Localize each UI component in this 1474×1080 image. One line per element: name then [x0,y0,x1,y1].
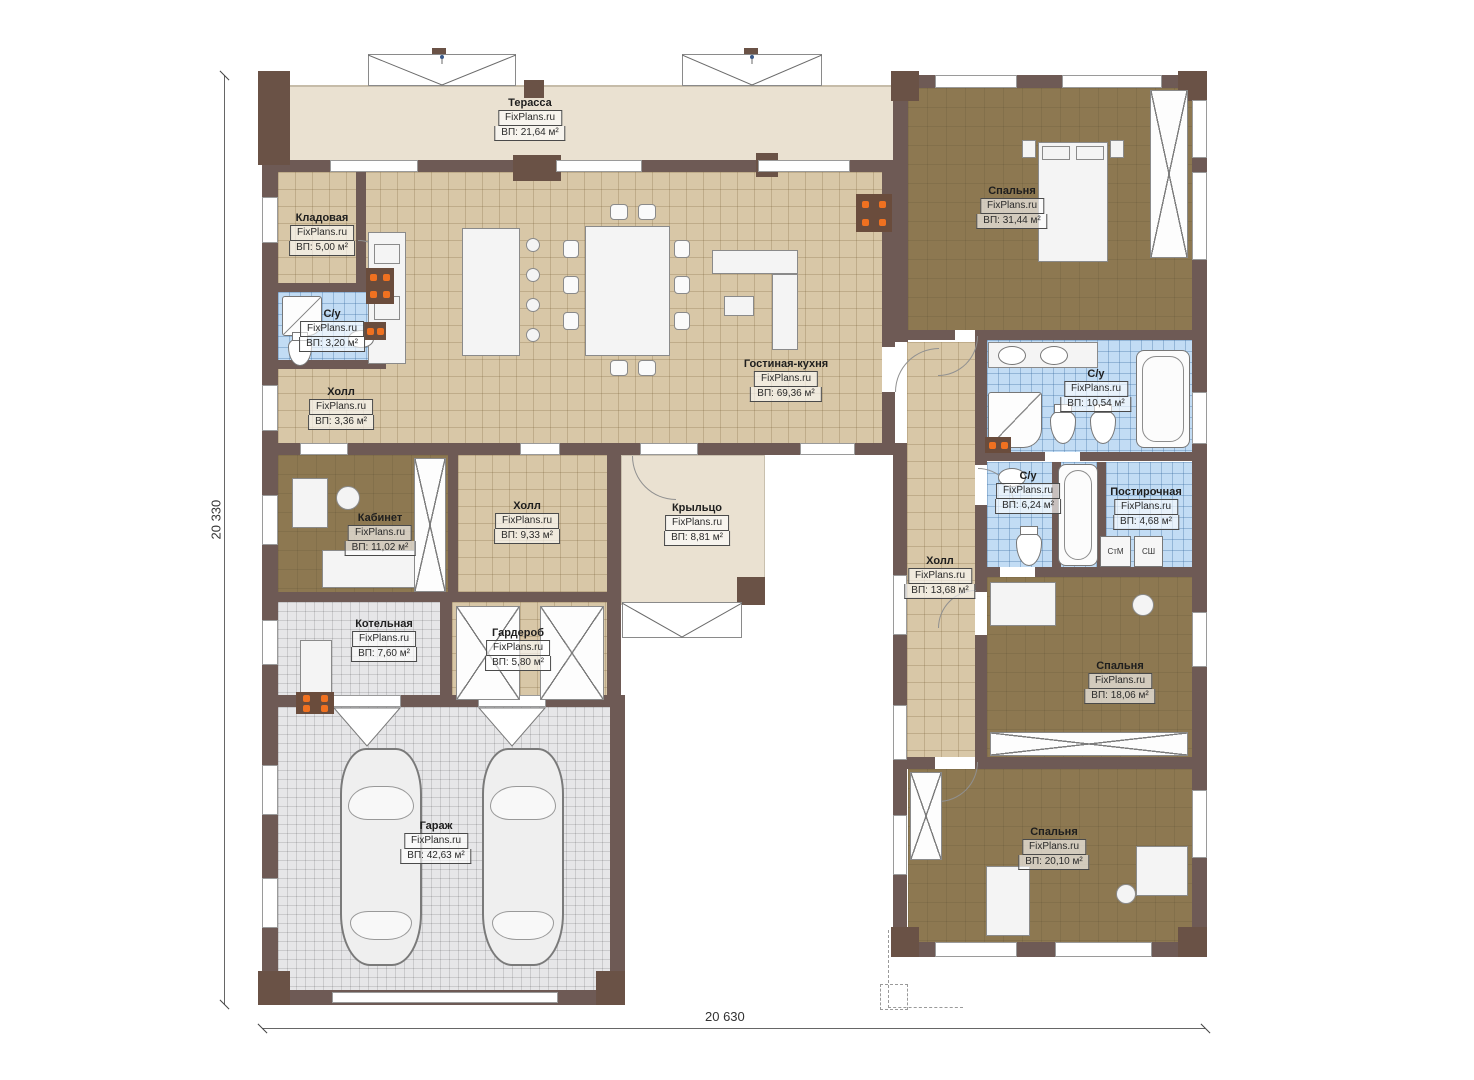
room-label-bath-small: С/у FixPlans.ru ВП: 3,20 м² [299,308,365,352]
wall [1035,567,1192,577]
room-name: Спальня [1096,660,1144,672]
room-label-bedroom-3: Спальня FixPlans.ru ВП: 20,10 м² [1018,826,1089,870]
room-area: ВП: 10,54 м² [1060,397,1131,412]
radiator [364,322,386,340]
room-label-hall-small: Холл FixPlans.ru ВП: 3,36 м² [308,386,374,430]
bar-stool [526,328,540,342]
window [300,443,348,455]
room-name: Холл [513,500,541,512]
room-watermark: FixPlans.ru [665,515,729,531]
room-area: ВП: 42,63 м² [400,849,471,864]
window [262,197,278,243]
window [1055,942,1152,957]
chair [674,240,690,258]
room-area: ВП: 20,10 м² [1018,855,1089,870]
room-label-terrace: Терасса FixPlans.ru ВП: 21,64 м² [494,97,565,141]
room-label-bedroom-2: Спальня FixPlans.ru ВП: 18,06 м² [1084,660,1155,704]
wall [975,567,1000,577]
wall-pier [513,155,561,181]
car [482,748,564,966]
radiator [985,437,1011,453]
room-watermark: FixPlans.ru [908,568,972,584]
wall [278,283,366,292]
wall [975,505,987,570]
chair [563,240,579,258]
room-name: Гостиная-кухня [744,358,828,370]
room-watermark: FixPlans.ru [754,371,818,387]
room-name: С/у [1087,368,1104,380]
room-label-living-kitchen: Гостиная-кухня FixPlans.ru ВП: 69,36 м² [744,358,828,402]
wardrobe-unit [990,732,1188,756]
wall-pier [596,971,625,1005]
dimension-line-bottom [262,1028,1205,1029]
room-watermark: FixPlans.ru [352,631,416,647]
chair [610,360,628,376]
room-area: ВП: 69,36 м² [750,387,821,402]
wall [975,757,1205,769]
room-watermark: FixPlans.ru [996,483,1060,499]
radiator [856,194,892,232]
room-area: ВП: 13,68 м² [904,584,975,599]
wall [356,172,366,292]
washing-machine: СтМ [1100,536,1131,567]
wall-pier [258,71,290,165]
window [262,620,278,665]
wall-pier [891,71,919,101]
bed [986,866,1030,936]
wall [985,330,1192,340]
nightstand [1110,140,1124,158]
wall-pier [258,971,290,1005]
window [262,765,278,815]
nightstand [1022,140,1036,158]
garage-entry-arrow [333,707,401,747]
wall [610,695,625,1005]
chair [674,276,690,294]
room-area: ВП: 31,44 м² [976,214,1047,229]
desk [292,478,328,528]
room-label-hall-mid: Холл FixPlans.ru ВП: 9,33 м² [494,500,560,544]
room-label-office: Кабинет FixPlans.ru ВП: 11,02 м² [345,512,416,556]
room-name: Спальня [1030,826,1078,838]
room-area: ВП: 21,64 м² [494,126,565,141]
awning-symbol [368,54,516,86]
radiator [366,268,394,304]
room-watermark: FixPlans.ru [404,833,468,849]
room-name: Холл [926,555,954,567]
boiler [300,640,332,698]
window [893,705,907,760]
dryer: СШ [1134,536,1163,567]
window [935,942,1017,957]
window [556,160,642,172]
room-watermark: FixPlans.ru [309,399,373,415]
bar-stool [526,268,540,282]
chair [638,360,656,376]
window [935,75,1017,88]
wardrobe-unit [910,772,942,860]
wall [448,455,458,592]
room-name: С/у [1019,470,1036,482]
bed [990,582,1056,626]
wall [975,577,987,592]
room-area: ВП: 18,06 м² [1084,689,1155,704]
room-watermark: FixPlans.ru [348,525,412,541]
wall [893,88,908,342]
door-opening [520,443,560,455]
wall-pier [891,927,919,957]
room-label-bath-master: С/у FixPlans.ru ВП: 10,54 м² [1060,368,1131,412]
room-name: Котельная [355,618,413,630]
chair [1132,594,1154,616]
bed [1038,142,1108,262]
floor-hall-main [907,342,975,757]
pillow [1042,146,1070,160]
window [893,815,907,875]
room-label-bedroom-master: Спальня FixPlans.ru ВП: 31,44 м² [976,185,1047,229]
garage-door [332,992,558,1003]
window [330,160,418,172]
room-area: ВП: 11,02 м² [345,541,416,556]
room-label-storage: Кладовая FixPlans.ru ВП: 5,00 м² [289,212,355,256]
cooktop [374,244,400,264]
room-name: Гардероб [492,627,544,639]
room-name: Терасса [508,97,552,109]
room-watermark: FixPlans.ru [1088,673,1152,689]
room-area: ВП: 5,80 м² [485,656,551,671]
room-watermark: FixPlans.ru [980,198,1044,214]
room-label-hall-main: Холл FixPlans.ru ВП: 13,68 м² [904,555,975,599]
room-watermark: FixPlans.ru [300,321,364,337]
room-label-bath-guest: С/у FixPlans.ru ВП: 6,24 м² [995,470,1061,514]
room-name: Гараж [420,820,453,832]
bar-stool [526,238,540,252]
chair [610,204,628,220]
chair [563,312,579,330]
room-area: ВП: 5,00 м² [289,241,355,256]
room-watermark: FixPlans.ru [498,110,562,126]
bar-stool [526,298,540,312]
room-area: ВП: 9,33 м² [494,529,560,544]
dining-table [585,226,670,356]
desk [1136,846,1188,896]
chair [563,276,579,294]
chair [674,312,690,330]
dashed-column [880,984,908,1010]
entrance-door [640,443,698,455]
room-label-garage: Гараж FixPlans.ru ВП: 42,63 м² [400,820,471,864]
room-name: Холл [327,386,355,398]
room-name: Кладовая [296,212,349,224]
dryer-label: СШ [1142,547,1155,556]
room-watermark: FixPlans.ru [1064,381,1128,397]
window [1192,100,1207,158]
wardrobe-unit [414,458,446,592]
window [800,443,855,455]
room-name: Крыльцо [672,502,722,514]
sofa [772,274,798,350]
room-area: ВП: 7,60 м² [351,647,417,662]
window [758,160,850,172]
dimension-label-bottom: 20 630 [705,1009,745,1024]
dimension-label-left: 20 330 [208,500,223,540]
floor-plan: СтМ СШ Терасса FixPlans.ru ВП: 21,64 м² … [0,0,1474,1080]
window [1192,172,1207,260]
wall-pier [1178,927,1207,957]
wall [607,443,621,705]
room-area: ВП: 6,24 м² [995,499,1061,514]
wall [893,635,907,705]
room-name: Кабинет [358,512,403,524]
wall [278,592,608,602]
room-area: ВП: 3,20 м² [299,337,365,352]
pillow [1076,146,1104,160]
chair [1116,884,1136,904]
room-watermark: FixPlans.ru [495,513,559,529]
window [1192,790,1207,858]
sink [998,346,1026,365]
room-watermark: FixPlans.ru [1114,499,1178,515]
wall [975,635,987,757]
bathtub [1136,350,1190,448]
bathtub [1058,464,1098,566]
wall [440,602,452,705]
radiator [296,692,334,714]
room-label-laundry: Постирочная FixPlans.ru ВП: 4,68 м² [1110,486,1181,530]
room-name: Постирочная [1110,486,1181,498]
sofa [712,250,798,274]
window [262,495,278,545]
wall [882,162,895,347]
window [1062,75,1162,88]
room-area: ВП: 4,68 м² [1113,515,1179,530]
room-label-porch: Крыльцо FixPlans.ru ВП: 8,81 м² [664,502,730,546]
wall-pier [524,80,544,98]
window [262,385,278,431]
room-name: Спальня [988,185,1036,197]
room-area: ВП: 3,36 м² [308,415,374,430]
room-label-wardrobe: Гардероб FixPlans.ru ВП: 5,80 м² [485,627,551,671]
garage-door-inner [333,695,401,707]
room-watermark: FixPlans.ru [290,225,354,241]
porch-step-symbol [622,602,742,638]
chair [638,204,656,220]
window [1192,612,1207,667]
room-name: С/у [323,308,340,320]
wall [882,392,895,443]
coffee-table [724,296,754,316]
kitchen-island [462,228,520,356]
window [262,878,278,928]
door-arc [895,348,939,392]
room-watermark: FixPlans.ru [1022,839,1086,855]
garage-entry-arrow [478,707,546,747]
dimension-line-left [224,75,225,1005]
sink [1040,346,1068,365]
chair [336,486,360,510]
room-area: ВП: 8,81 м² [664,531,730,546]
window [1192,392,1207,444]
floor-terrace [278,85,895,162]
washing-machine-label: СтМ [1107,547,1123,556]
wall-pier [737,577,765,605]
wall [1080,452,1192,461]
room-label-boiler: Котельная FixPlans.ru ВП: 7,60 м² [351,618,417,662]
awning-symbol [682,54,822,86]
wall [975,452,1045,461]
wardrobe-unit [1150,90,1188,258]
room-watermark: FixPlans.ru [486,640,550,656]
